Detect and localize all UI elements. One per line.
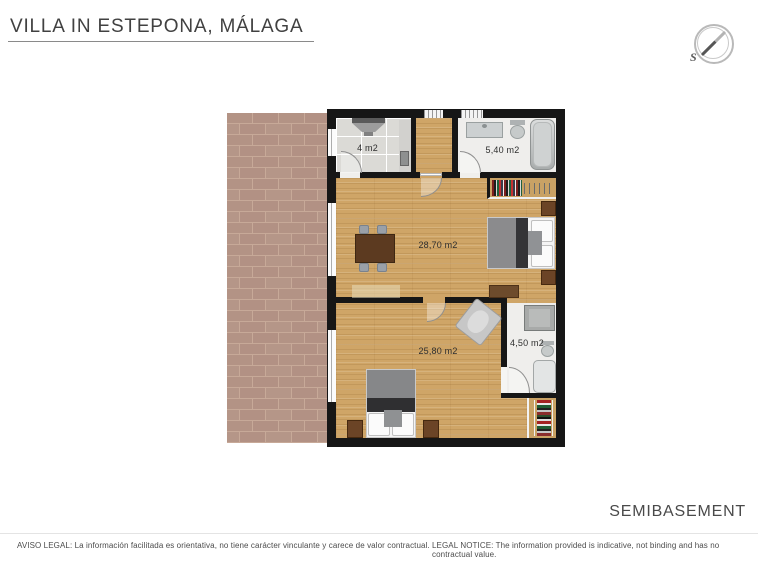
dining-table <box>355 234 395 263</box>
room-label-bathroom-bottom: 4,50 m2 <box>503 338 551 348</box>
kitchen-hood-icon <box>352 118 385 123</box>
terrace-paving <box>227 113 328 443</box>
nightstand <box>541 201 556 216</box>
window-bedroom <box>328 330 336 402</box>
wardrobe-rail-icon <box>524 183 554 194</box>
dining-chair <box>359 263 369 272</box>
living-rug <box>352 285 400 298</box>
window-kitchen <box>328 129 336 156</box>
room-label-kitchen: 4 m2 <box>345 143 390 153</box>
bed-second-duvet <box>367 370 415 398</box>
legal-text-es: AVISO LEGAL: La información facilitada e… <box>17 541 430 550</box>
bed-main-duvet <box>488 218 517 268</box>
wall-kitchen-hall <box>411 118 416 173</box>
compass-icon <box>694 24 734 64</box>
room-label-bedroom: 25,80 m2 <box>408 346 468 356</box>
room-label-living: 28,70 m2 <box>408 240 468 250</box>
shower-tray <box>529 309 550 327</box>
shelf-items-icon <box>537 400 551 436</box>
footer-divider <box>0 533 758 534</box>
vent-bathroom-top <box>461 110 483 118</box>
shower <box>524 305 555 331</box>
bed-second-tray <box>384 410 402 427</box>
dining-chair <box>359 225 369 234</box>
bathtub-inner <box>533 122 552 167</box>
floor-plan-page: VILLA IN ESTEPONA, MÁLAGA S <box>0 0 758 564</box>
bathtub-bottom <box>533 360 556 393</box>
page-title: VILLA IN ESTEPONA, MÁLAGA <box>8 16 314 42</box>
kitchen-sink <box>400 151 409 166</box>
nightstand <box>541 270 556 285</box>
shelf-divider <box>552 400 553 436</box>
wall-hall-bath <box>452 118 458 173</box>
compass-south-label: S <box>690 50 697 65</box>
window-living <box>328 203 336 276</box>
nightstand <box>347 420 363 438</box>
dining-chair <box>377 263 387 272</box>
bed-main-runner <box>516 218 528 268</box>
door-opening-bathroom-bottom <box>501 367 507 393</box>
vent-hall <box>424 110 443 118</box>
bed-main-tray <box>528 231 542 255</box>
door-leaf-hall <box>420 173 442 176</box>
legal-text-en: LEGAL NOTICE: The information provided i… <box>432 541 758 559</box>
toilet-top-bowl <box>510 125 525 139</box>
sink-top-faucet <box>482 124 487 128</box>
armchair-cushion <box>464 307 493 337</box>
kitchen-hood-stem <box>364 132 373 136</box>
bedroom-chest <box>489 285 519 298</box>
room-label-bathroom-top: 5,40 m2 <box>475 145 530 155</box>
shelf-divider <box>534 400 535 436</box>
wardrobe-clothes-icon <box>492 180 522 196</box>
floor-name: SEMIBASEMENT <box>609 503 746 521</box>
nightstand <box>423 420 439 438</box>
brick-pattern-icon <box>227 113 328 443</box>
dining-chair <box>377 225 387 234</box>
